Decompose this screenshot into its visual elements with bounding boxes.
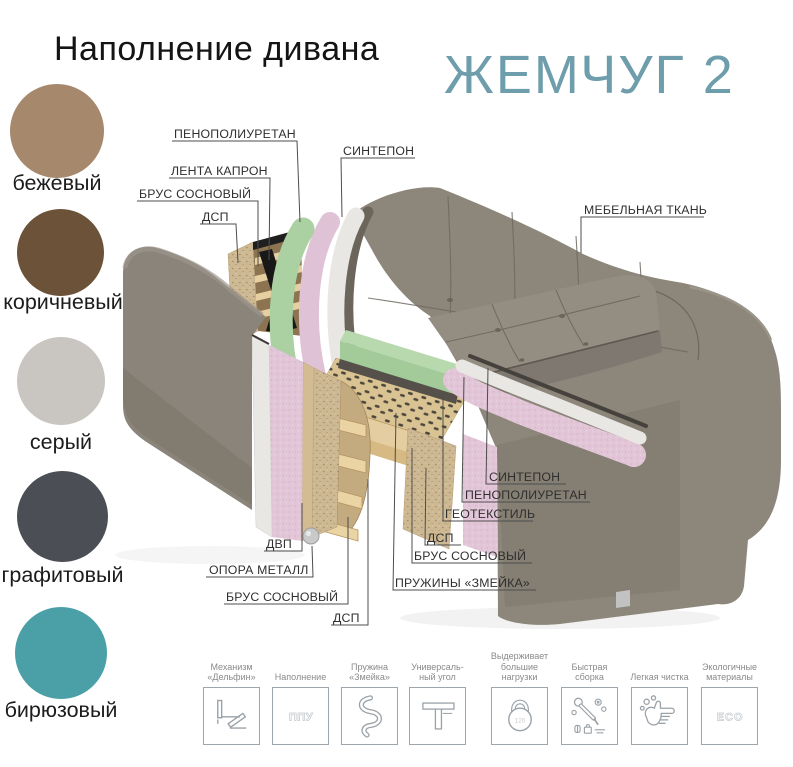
feature-caption: Пружина «Змейка»: [334, 650, 406, 683]
label-brus-sosnovy-top: БРУС СОСНОВЫЙ: [139, 188, 251, 201]
label-dsp-left: ДСП: [333, 612, 360, 625]
label-penopoliuretan-bottom: ПЕНОПОЛИУРЕТАН: [465, 489, 587, 502]
label-dsp-middle: ДСП: [427, 532, 454, 545]
feature-filling: Наполнение ППУ: [272, 650, 329, 745]
easy-cleaning-icon: [635, 691, 685, 741]
quick-assembly-icon: [565, 691, 615, 741]
label-dvp: ДВП: [266, 538, 292, 551]
feature-dolphin-mechanism: Механизм «Дельфин»: [203, 650, 260, 745]
eco-badge: ECO: [716, 711, 743, 723]
dvp-panel: [302, 362, 314, 541]
feature-caption: Легкая чистка: [624, 650, 696, 683]
feature-box: [631, 687, 688, 745]
label-penopoliuretan-top: ПЕНОПОЛИУРЕТАН: [174, 128, 296, 141]
feature-caption: Универсаль- ный угол: [402, 650, 474, 683]
feature-easy-cleaning: Легкая чистка: [631, 650, 688, 745]
feature-box: [203, 687, 260, 745]
feature-box: 120: [491, 687, 548, 745]
weight-badge: 120: [514, 717, 525, 724]
feature-caption: Механизм «Дельфин»: [196, 650, 268, 683]
label-brus-sosnovy-middle: БРУС СОСНОВЫЙ: [414, 550, 526, 563]
chipboard-frame-panel: [312, 368, 341, 537]
label-mebelnaya-tkan: МЕБЕЛЬНАЯ ТКАНЬ: [584, 204, 707, 217]
feature-eco-materials: Экологичные материалы ECO: [701, 650, 758, 745]
feature-heavy-load: Выдерживает большие нагрузки 120: [491, 650, 548, 745]
label-opora-metall: ОПОРА МЕТАЛЛ: [209, 564, 309, 577]
ppu-badge: ППУ: [288, 711, 313, 723]
feature-box: ECO: [701, 687, 758, 745]
feature-box: [561, 687, 618, 745]
label-geotekstil: ГЕОТЕКСТИЛЬ: [445, 508, 535, 521]
feature-caption: Наполнение: [265, 650, 337, 683]
eco-materials-icon: ECO: [705, 691, 755, 741]
snake-spring-icon: [345, 691, 395, 741]
feature-quick-assembly: Быстрая сборка: [561, 650, 618, 745]
feature-snake-spring: Пружина «Змейка»: [341, 650, 398, 745]
feature-caption: Экологичные материалы: [694, 650, 766, 683]
sofa-infographic: Наполнение дивана ЖЕМЧУГ 2 бежевый корич…: [0, 0, 793, 767]
label-dsp-top: ДСП: [202, 211, 229, 224]
feature-box: [409, 687, 466, 745]
universal-corner-icon: [413, 691, 463, 741]
dolphin-mechanism-icon: [207, 691, 257, 741]
weight-load-icon: 120: [495, 691, 545, 741]
label-sintepon-bottom: СИНТЕПОН: [489, 471, 560, 484]
metal-roller-support: [303, 528, 319, 544]
feature-caption: Выдерживает большие нагрузки: [484, 650, 556, 683]
ppu-filling-icon: ППУ: [276, 691, 326, 741]
metal-leg: [616, 590, 630, 608]
label-pruzhiny-zmeyka: ПРУЖИНЫ «ЗМЕЙКА»: [395, 577, 530, 590]
feature-caption: Быстрая сборка: [554, 650, 626, 683]
label-brus-sosnovy-left: БРУС СОСНОВЫЙ: [226, 591, 338, 604]
sintepon-band-armrest: [252, 336, 272, 537]
feature-box: [341, 687, 398, 745]
pink-foam-armrest: [269, 345, 303, 541]
label-lenta-kapron: ЛЕНТА КАПРОН: [171, 165, 268, 178]
feature-universal-corner: Универсаль- ный угол: [409, 650, 466, 745]
label-sintepon-top: СИНТЕПОН: [343, 145, 414, 158]
feature-box: ППУ: [272, 687, 329, 745]
